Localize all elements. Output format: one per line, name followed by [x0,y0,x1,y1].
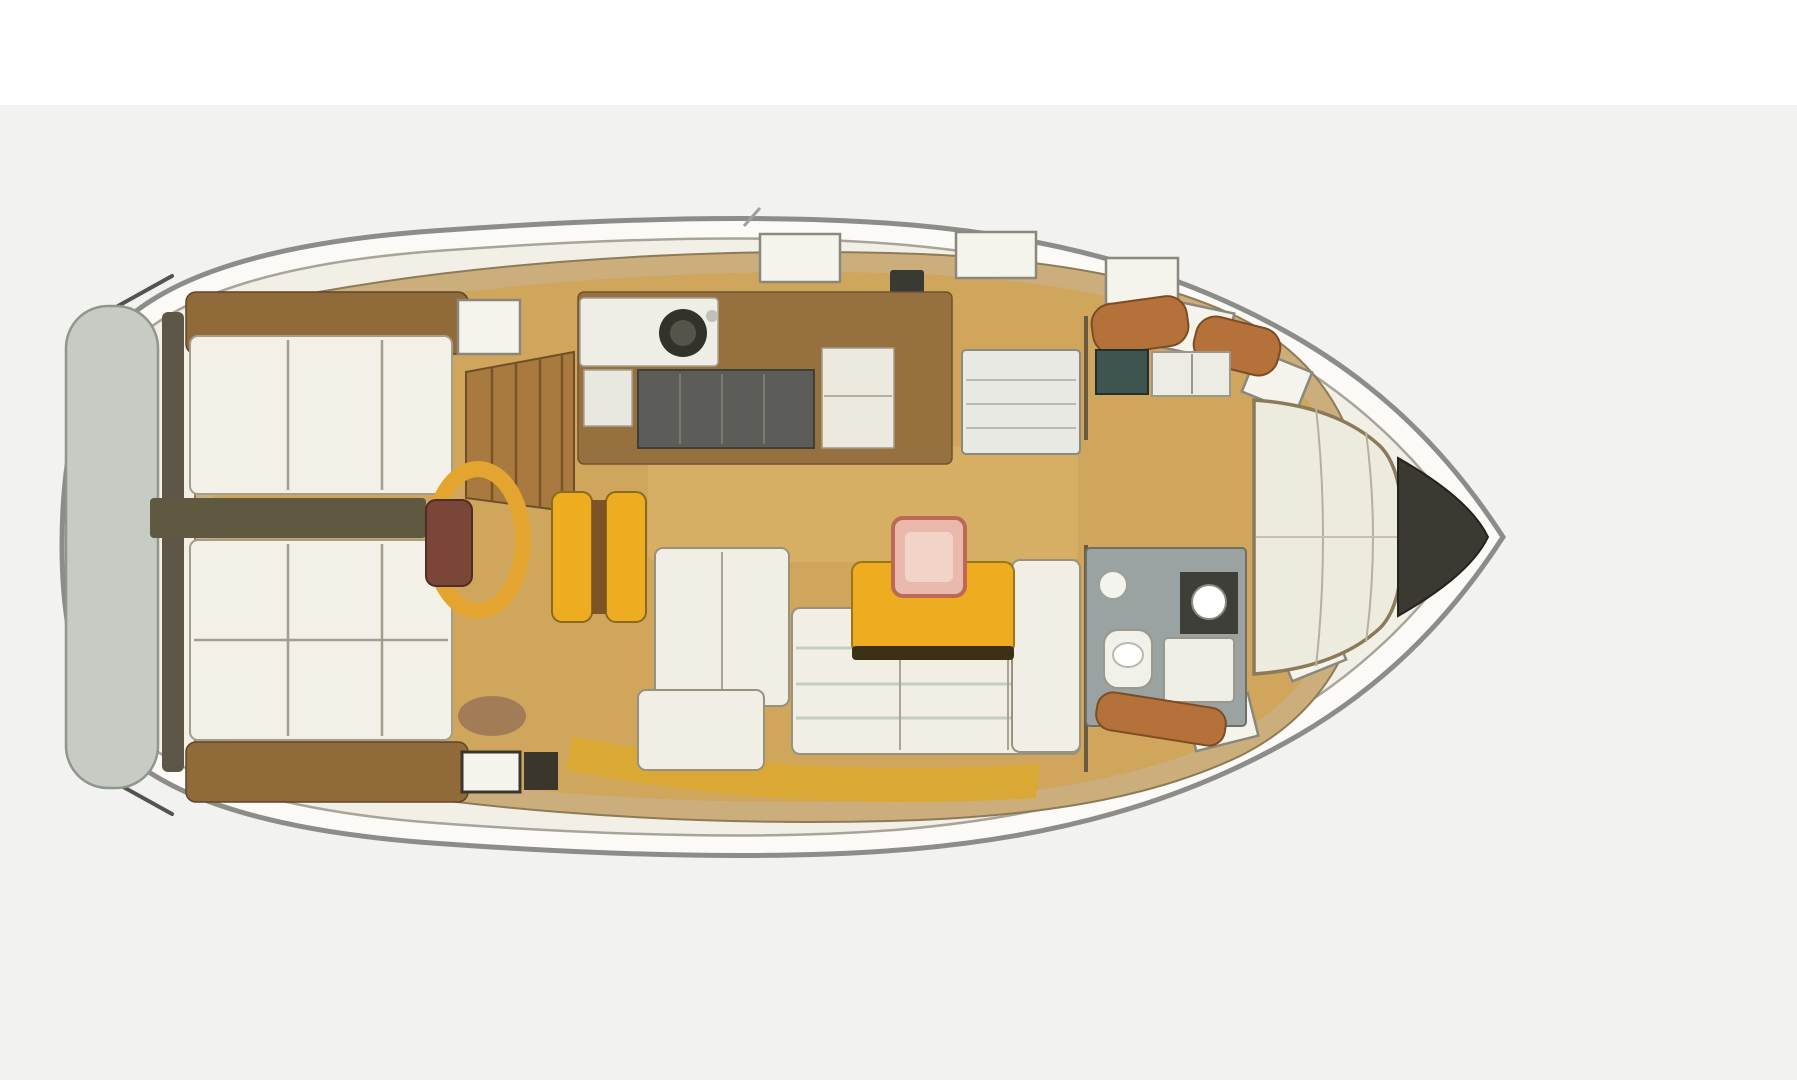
head-sink-bowl [1192,585,1226,619]
boat-floor-plan-image [0,0,1797,1080]
cockpit-coaming-starboard [186,742,468,802]
shower-fixture [1099,571,1127,599]
salon-table-shadow [852,646,1014,660]
toilet-bowl [1113,643,1143,667]
cockpit-table-rail [592,500,606,614]
deck-hatch [760,234,840,282]
salon-settee-end [1012,560,1080,752]
galley-fridge [822,348,894,448]
cabin-locker-dark [1096,350,1148,394]
galley [578,292,952,464]
transom-wall [162,312,184,772]
galley-stove-counter [638,370,814,448]
cockpit-walkway [150,498,426,538]
deck-hatch [458,300,520,354]
deck-hatch [462,752,520,792]
deck-locker-lid [524,752,558,790]
salon-settee-aft-corner [638,690,764,770]
floor-plan-canvas [0,0,1797,1080]
helm-pedestal [426,500,472,586]
deck-hatch [956,232,1036,278]
cockpit-bench-port [190,336,452,494]
galley-faucet [706,310,718,322]
nav-chart-table [962,350,1080,454]
cockpit-table-leaf-port [552,492,592,622]
companionway-steps [466,352,574,512]
galley-counter-left [584,370,632,426]
nav-station [962,350,1080,454]
pedestal-shadow [458,696,526,736]
galley-sink-bowl [670,320,696,346]
cockpit-table-leaf-starboard [606,492,646,622]
stern [66,306,184,788]
head-vanity-cabinet [1164,638,1234,702]
swim-platform [66,306,158,788]
table-tray-inner [905,532,953,582]
